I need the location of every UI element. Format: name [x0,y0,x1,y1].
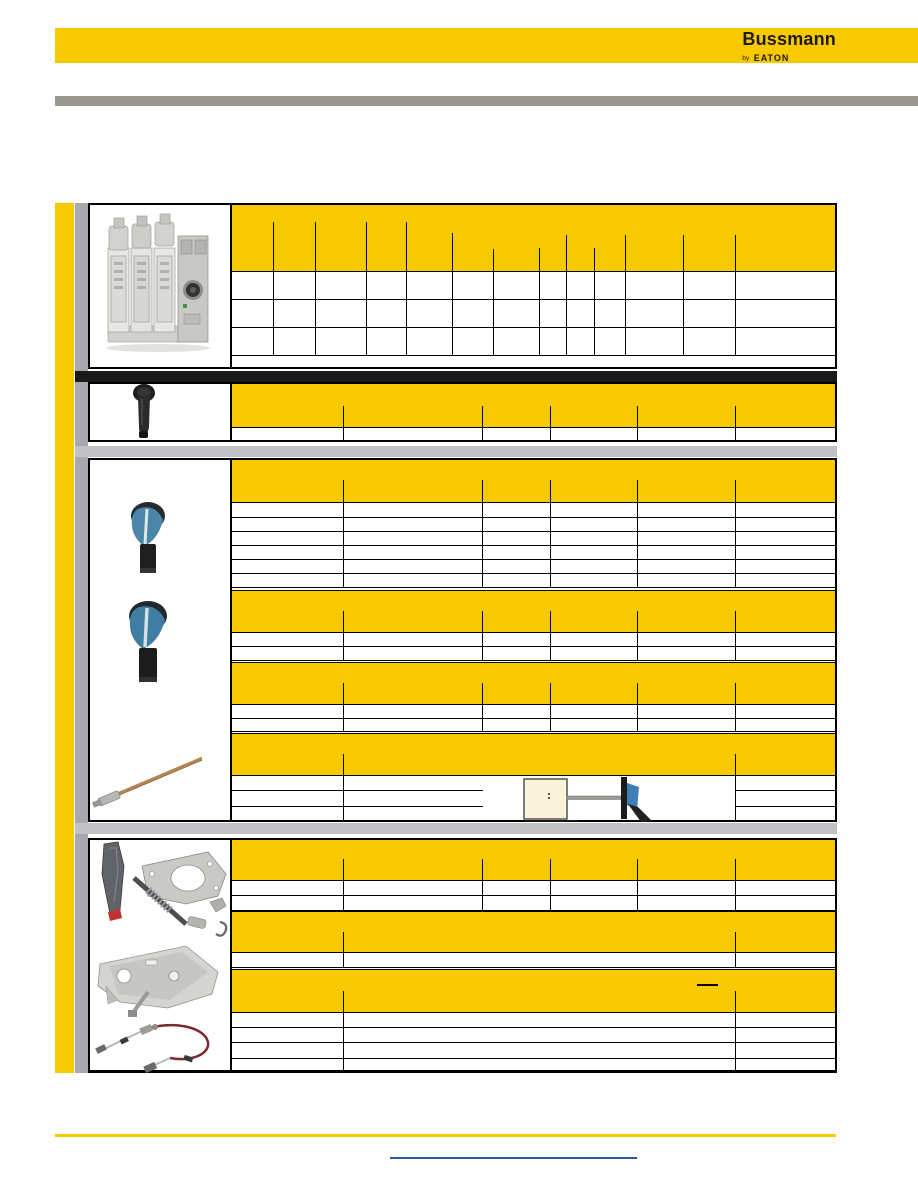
grid-vline [735,880,736,910]
grid-hline [230,271,837,272]
grid-hline [230,646,837,647]
grid-hline [230,733,837,734]
interlock-mechanism-parts-photo [90,840,230,940]
extension-shaft-photo [90,748,210,810]
grid-vline [343,932,344,952]
grid-hline [230,517,837,518]
grid-vline [735,704,736,731]
grid-vline [735,952,736,967]
grid-vline [482,683,483,704]
grid-vline [550,704,551,731]
grid-vline [625,271,626,355]
catalog-page: Bussmann by EATON [0,0,918,1188]
grid-hline [735,806,837,807]
grid-vline [735,406,736,427]
grid-vline [230,458,232,822]
gray-separator-bar-1 [75,446,837,457]
grid-vline [637,704,638,731]
grid-vline [343,880,344,910]
grid-vline [566,271,567,355]
top-gray-rule [55,96,918,106]
brand-name: Bussmann [742,31,836,48]
grid-hline [230,531,837,532]
grid-vline [343,704,344,731]
grid-vline [735,932,736,952]
grid-vline [343,611,344,632]
grid-hline [230,718,837,719]
grid-hline [230,806,483,807]
black-separator-bar [75,371,837,382]
footer-yellow-rule [55,1134,836,1137]
bussmann-eaton-logo: Bussmann by EATON [742,31,836,66]
grid-hline [230,502,837,503]
grid-vline [735,427,736,442]
grid-vline [482,632,483,660]
grid-vline [735,611,736,632]
grid-vline [315,222,316,271]
grid-vline [735,991,736,1012]
grid-hline [230,969,837,970]
grid-vline [625,235,626,271]
grid-hline [230,880,837,881]
grid-vline [230,382,232,442]
grid-hline [230,355,837,356]
grid-vline [406,222,407,271]
grid-vline [566,235,567,271]
grid-vline [539,248,540,271]
grid-hline [230,967,837,968]
grid-vline [343,502,344,587]
grid-hline [230,704,837,705]
grid-hline [230,1058,837,1059]
grid-hline [230,327,837,328]
black-rotary-handle-photo [120,383,170,441]
grid-vline [452,271,453,355]
blue-rotary-handle-photo [118,500,178,580]
grid-vline [637,611,638,632]
grid-vline [230,203,232,369]
grid-hline [230,895,837,896]
section-box [88,382,837,442]
grid-vline [343,480,344,502]
grid-vline [637,480,638,502]
grid-vline [482,704,483,731]
grid-vline [273,222,274,271]
grid-vline [343,859,344,880]
grid-vline [343,406,344,427]
grid-hline [230,299,837,300]
grid-hline [230,559,837,560]
grid-vline [550,859,551,880]
grid-hline [230,632,837,633]
grid-vline [273,271,274,355]
gray-separator-bar-2 [75,823,837,834]
grid-vline [482,480,483,502]
mounting-bracket-plate-photo [90,942,228,1020]
grid-vline [637,502,638,587]
grid-hline [230,587,837,588]
grid-vline [343,427,344,442]
grid-vline [482,427,483,442]
grid-vline [735,480,736,502]
grid-vline [683,271,684,355]
grid-vline [343,632,344,660]
grid-vline [343,683,344,704]
grid-hline [230,1012,837,1013]
grid-vline [550,611,551,632]
grid-vline [735,502,736,587]
grid-vline [493,249,494,271]
grid-vline [637,406,638,427]
top-banner: Bussmann by EATON [55,28,918,63]
grid-hline [230,1042,837,1043]
grid-vline [550,502,551,587]
grid-hline [735,790,837,791]
grid-vline [735,859,736,880]
grid-vline [550,632,551,660]
grid-vline [735,775,736,822]
grid-vline [637,683,638,704]
grid-hline [230,545,837,546]
grid-vline [735,632,736,660]
grid-vline [637,632,638,660]
door-mounted-handle-diagram [520,776,665,823]
grid-vline [482,502,483,587]
grid-vline [735,754,736,775]
grid-vline [343,991,344,1012]
grid-vline [550,880,551,910]
grid-vline [343,1012,344,1073]
grid-vline [315,271,316,355]
grid-vline [637,427,638,442]
grid-hline [230,590,837,591]
footer-link[interactable] [390,1157,637,1159]
grid-hline [230,731,837,732]
grid-hline [230,427,837,428]
eaton-wordmark: EATON [754,53,790,63]
grid-hline [230,1027,837,1028]
grid-vline [735,235,736,271]
grid-vline [735,271,736,355]
grid-vline [482,406,483,427]
grid-vline [343,952,344,967]
grid-hline [230,662,837,663]
grid-vline [637,859,638,880]
grid-vline [550,480,551,502]
grid-vline [452,233,453,271]
grid-vline [594,271,595,355]
grid-vline [735,683,736,704]
bowden-cable-photo [92,1018,224,1072]
grid-vline [550,683,551,704]
grid-vline [343,775,344,822]
grid-hline [697,984,718,986]
grid-vline [482,611,483,632]
grid-vline [683,235,684,271]
grid-hline [230,911,837,912]
grid-hline [230,790,483,791]
grid-vline [550,427,551,442]
grid-vline [406,271,407,355]
left-yellow-stripe [55,203,74,1073]
grid-vline [366,222,367,271]
fuse-switch-disconnector-photo [96,210,226,360]
blue-rotary-handle-large-photo [115,598,181,690]
grid-vline [482,880,483,910]
grid-hline [230,573,837,574]
grid-vline [366,271,367,355]
grid-vline [493,271,494,355]
grid-vline [539,271,540,355]
grid-vline [482,859,483,880]
grid-vline [343,754,344,775]
grid-vline [550,406,551,427]
grid-vline [637,880,638,910]
brand-byline: by EATON [742,48,836,66]
grid-vline [230,838,232,1073]
grid-hline [230,660,837,661]
grid-vline [594,248,595,271]
grid-vline [735,1012,736,1073]
left-gray-stripe [75,203,88,1073]
grid-hline [230,952,837,953]
